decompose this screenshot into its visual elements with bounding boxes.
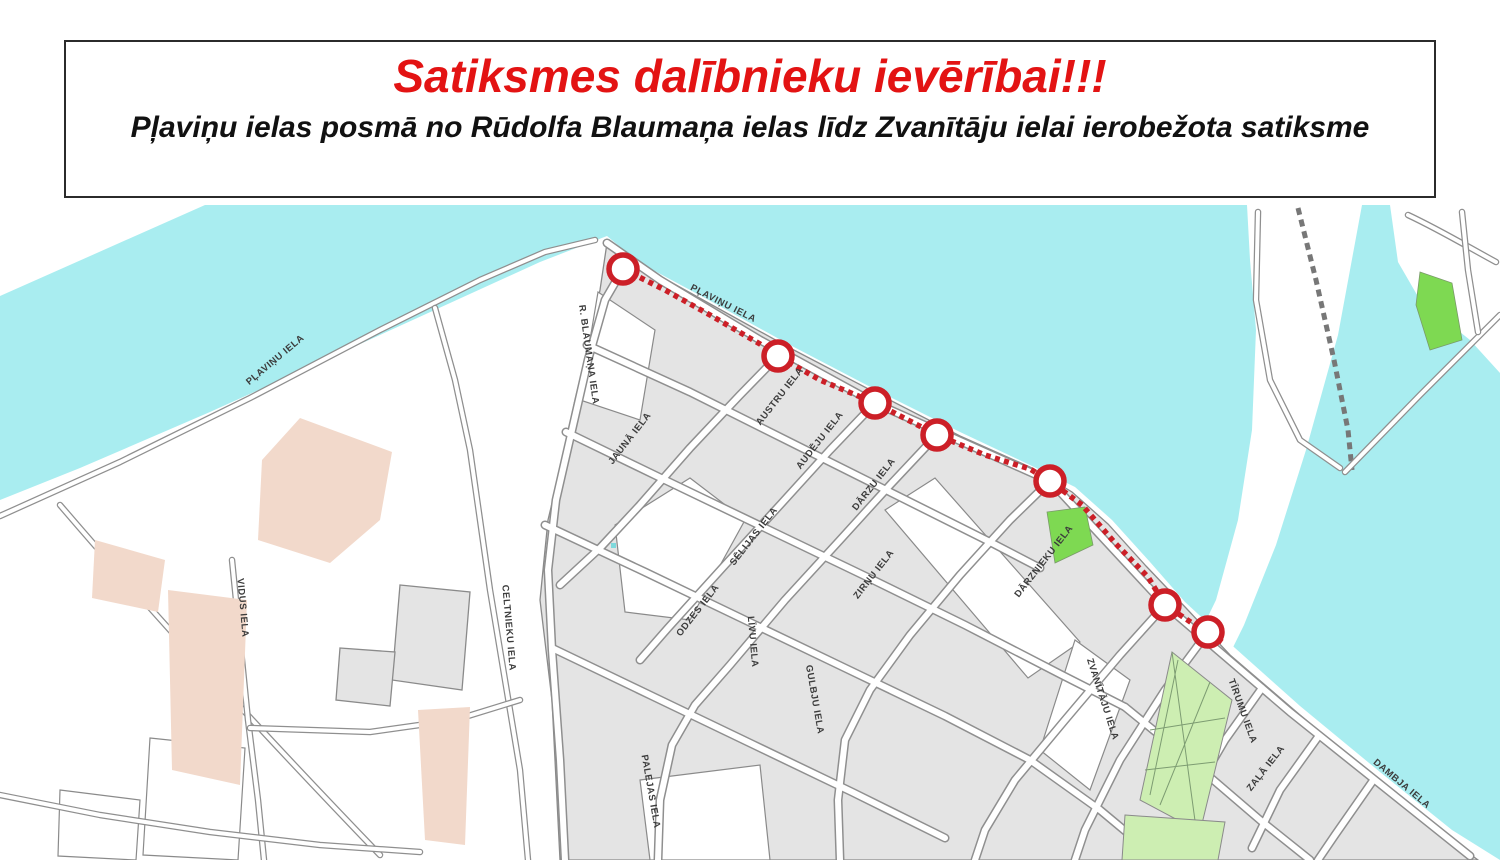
notice-title: Satiksmes dalībnieku ievērībai!!! xyxy=(393,48,1106,106)
route-marker xyxy=(923,421,951,449)
route-marker xyxy=(1194,618,1222,646)
notice-subtitle: Pļaviņu ielas posmā no Rūdolfa Blaumaņa … xyxy=(131,108,1370,147)
route-marker xyxy=(764,342,792,370)
route-marker xyxy=(861,389,889,417)
traffic-notice-flyer: PĻAVIŅU IELAPĻAVIŅU IELAR. BLAUMAŅA IELA… xyxy=(0,0,1500,860)
route-marker xyxy=(1036,467,1064,495)
park-strip xyxy=(1122,815,1225,860)
notice-banner: Satiksmes dalībnieku ievērībai!!! Pļaviņ… xyxy=(64,40,1436,198)
route-marker xyxy=(609,255,637,283)
route-marker xyxy=(1151,591,1179,619)
small-pond-dot xyxy=(611,543,616,548)
